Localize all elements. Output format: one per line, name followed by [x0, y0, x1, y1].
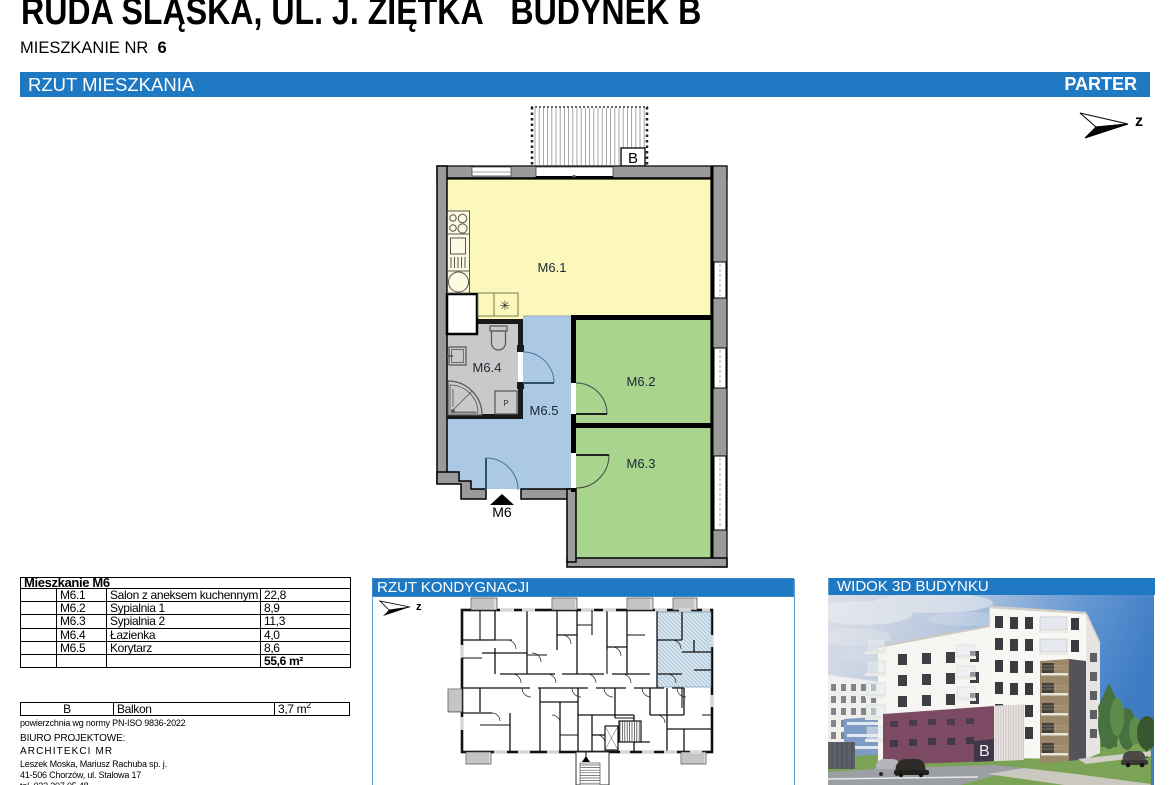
svg-text:B: B [628, 150, 638, 167]
svg-text:M6: M6 [492, 504, 512, 520]
svg-text:M6.1: M6.1 [538, 260, 567, 275]
svg-text:M6.4: M6.4 [473, 360, 502, 375]
svg-text:✳: ✳ [500, 298, 511, 313]
svg-text:M6.2: M6.2 [627, 374, 656, 389]
svg-text:M6.3: M6.3 [627, 456, 656, 471]
svg-text:M6.5: M6.5 [530, 403, 559, 418]
svg-text:P: P [503, 399, 508, 408]
svg-text:z: z [416, 601, 422, 613]
svg-text:B: B [979, 743, 990, 760]
